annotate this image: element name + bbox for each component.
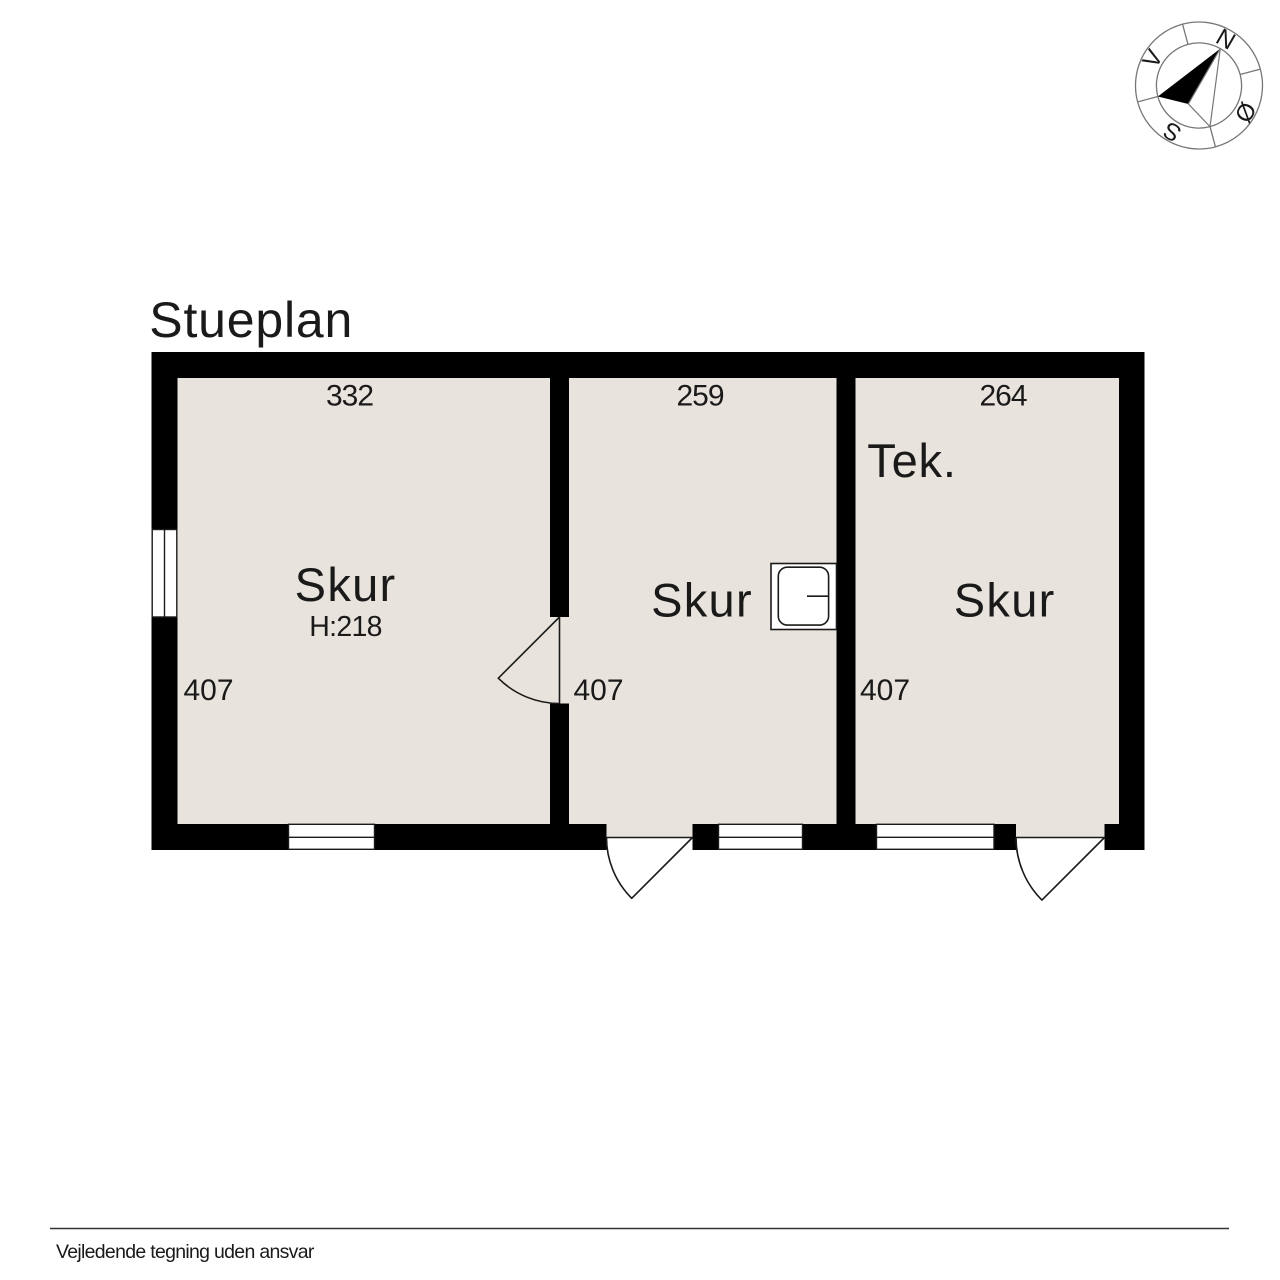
svg-text:259: 259 [676,380,723,413]
svg-text:Skur: Skur [954,574,1056,627]
svg-text:Vejledende tegning uden ansvar: Vejledende tegning uden ansvar [56,1241,315,1263]
svg-text:264: 264 [979,380,1026,413]
svg-text:H:218: H:218 [309,611,382,643]
svg-text:Stueplan: Stueplan [149,292,353,348]
svg-text:407: 407 [574,674,624,707]
svg-text:332: 332 [326,380,373,413]
svg-text:Skur: Skur [295,558,397,611]
svg-text:407: 407 [860,674,910,707]
svg-text:407: 407 [184,674,234,707]
svg-text:Skur: Skur [651,574,753,627]
svg-text:Tek.: Tek. [867,434,956,487]
